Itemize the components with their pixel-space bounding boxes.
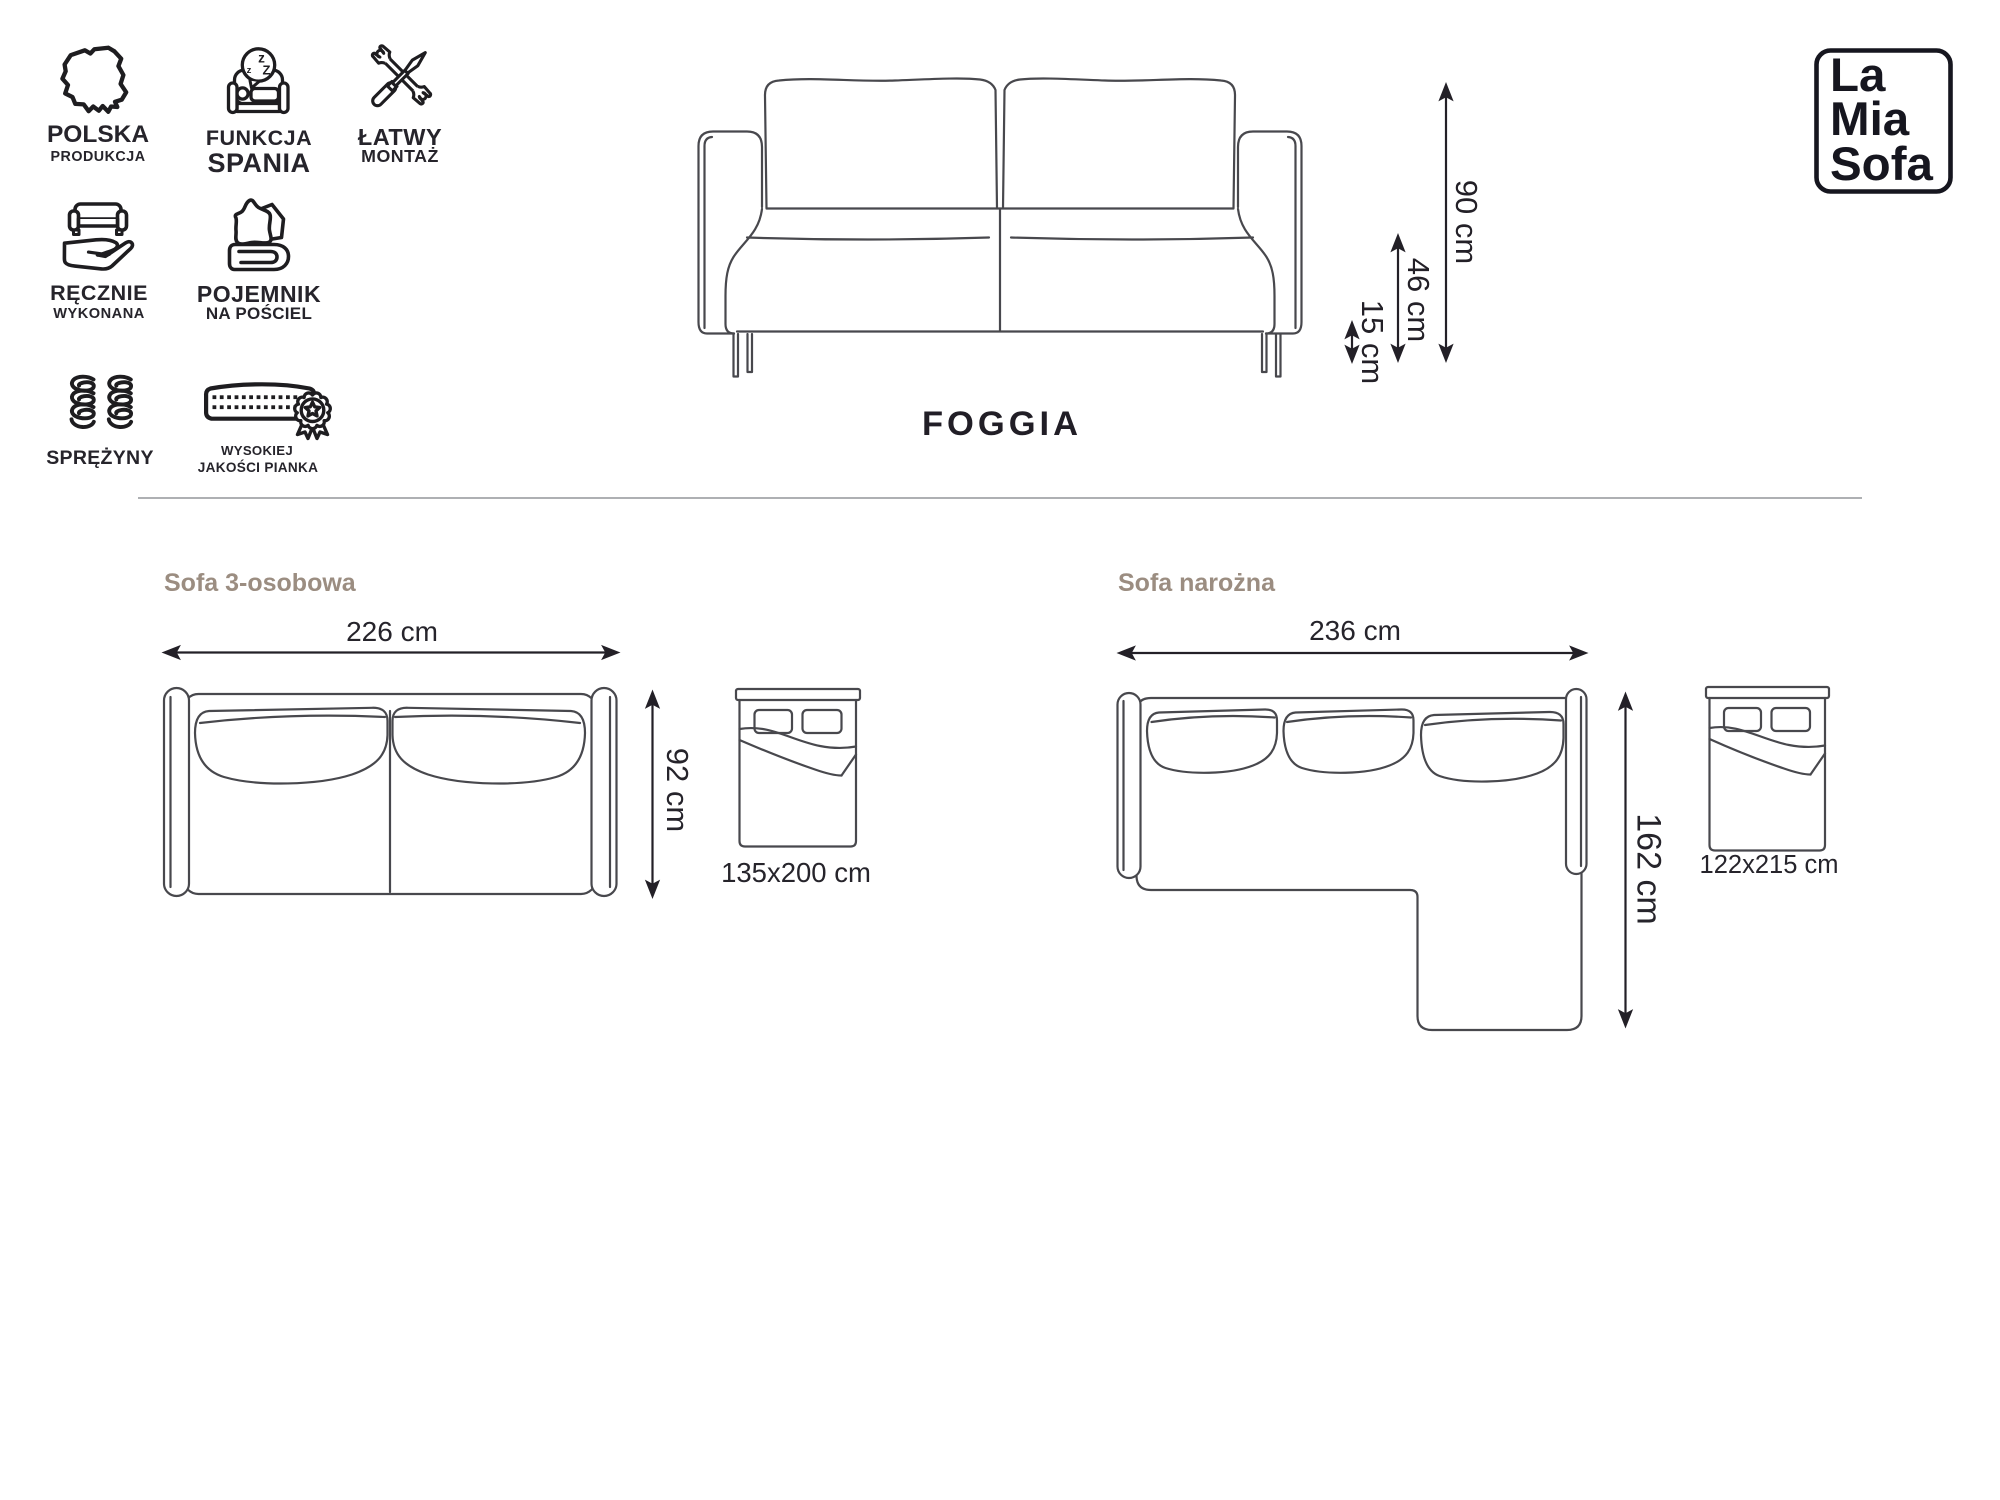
svg-text:z: z xyxy=(247,65,252,76)
svg-text:Z: Z xyxy=(263,63,271,78)
